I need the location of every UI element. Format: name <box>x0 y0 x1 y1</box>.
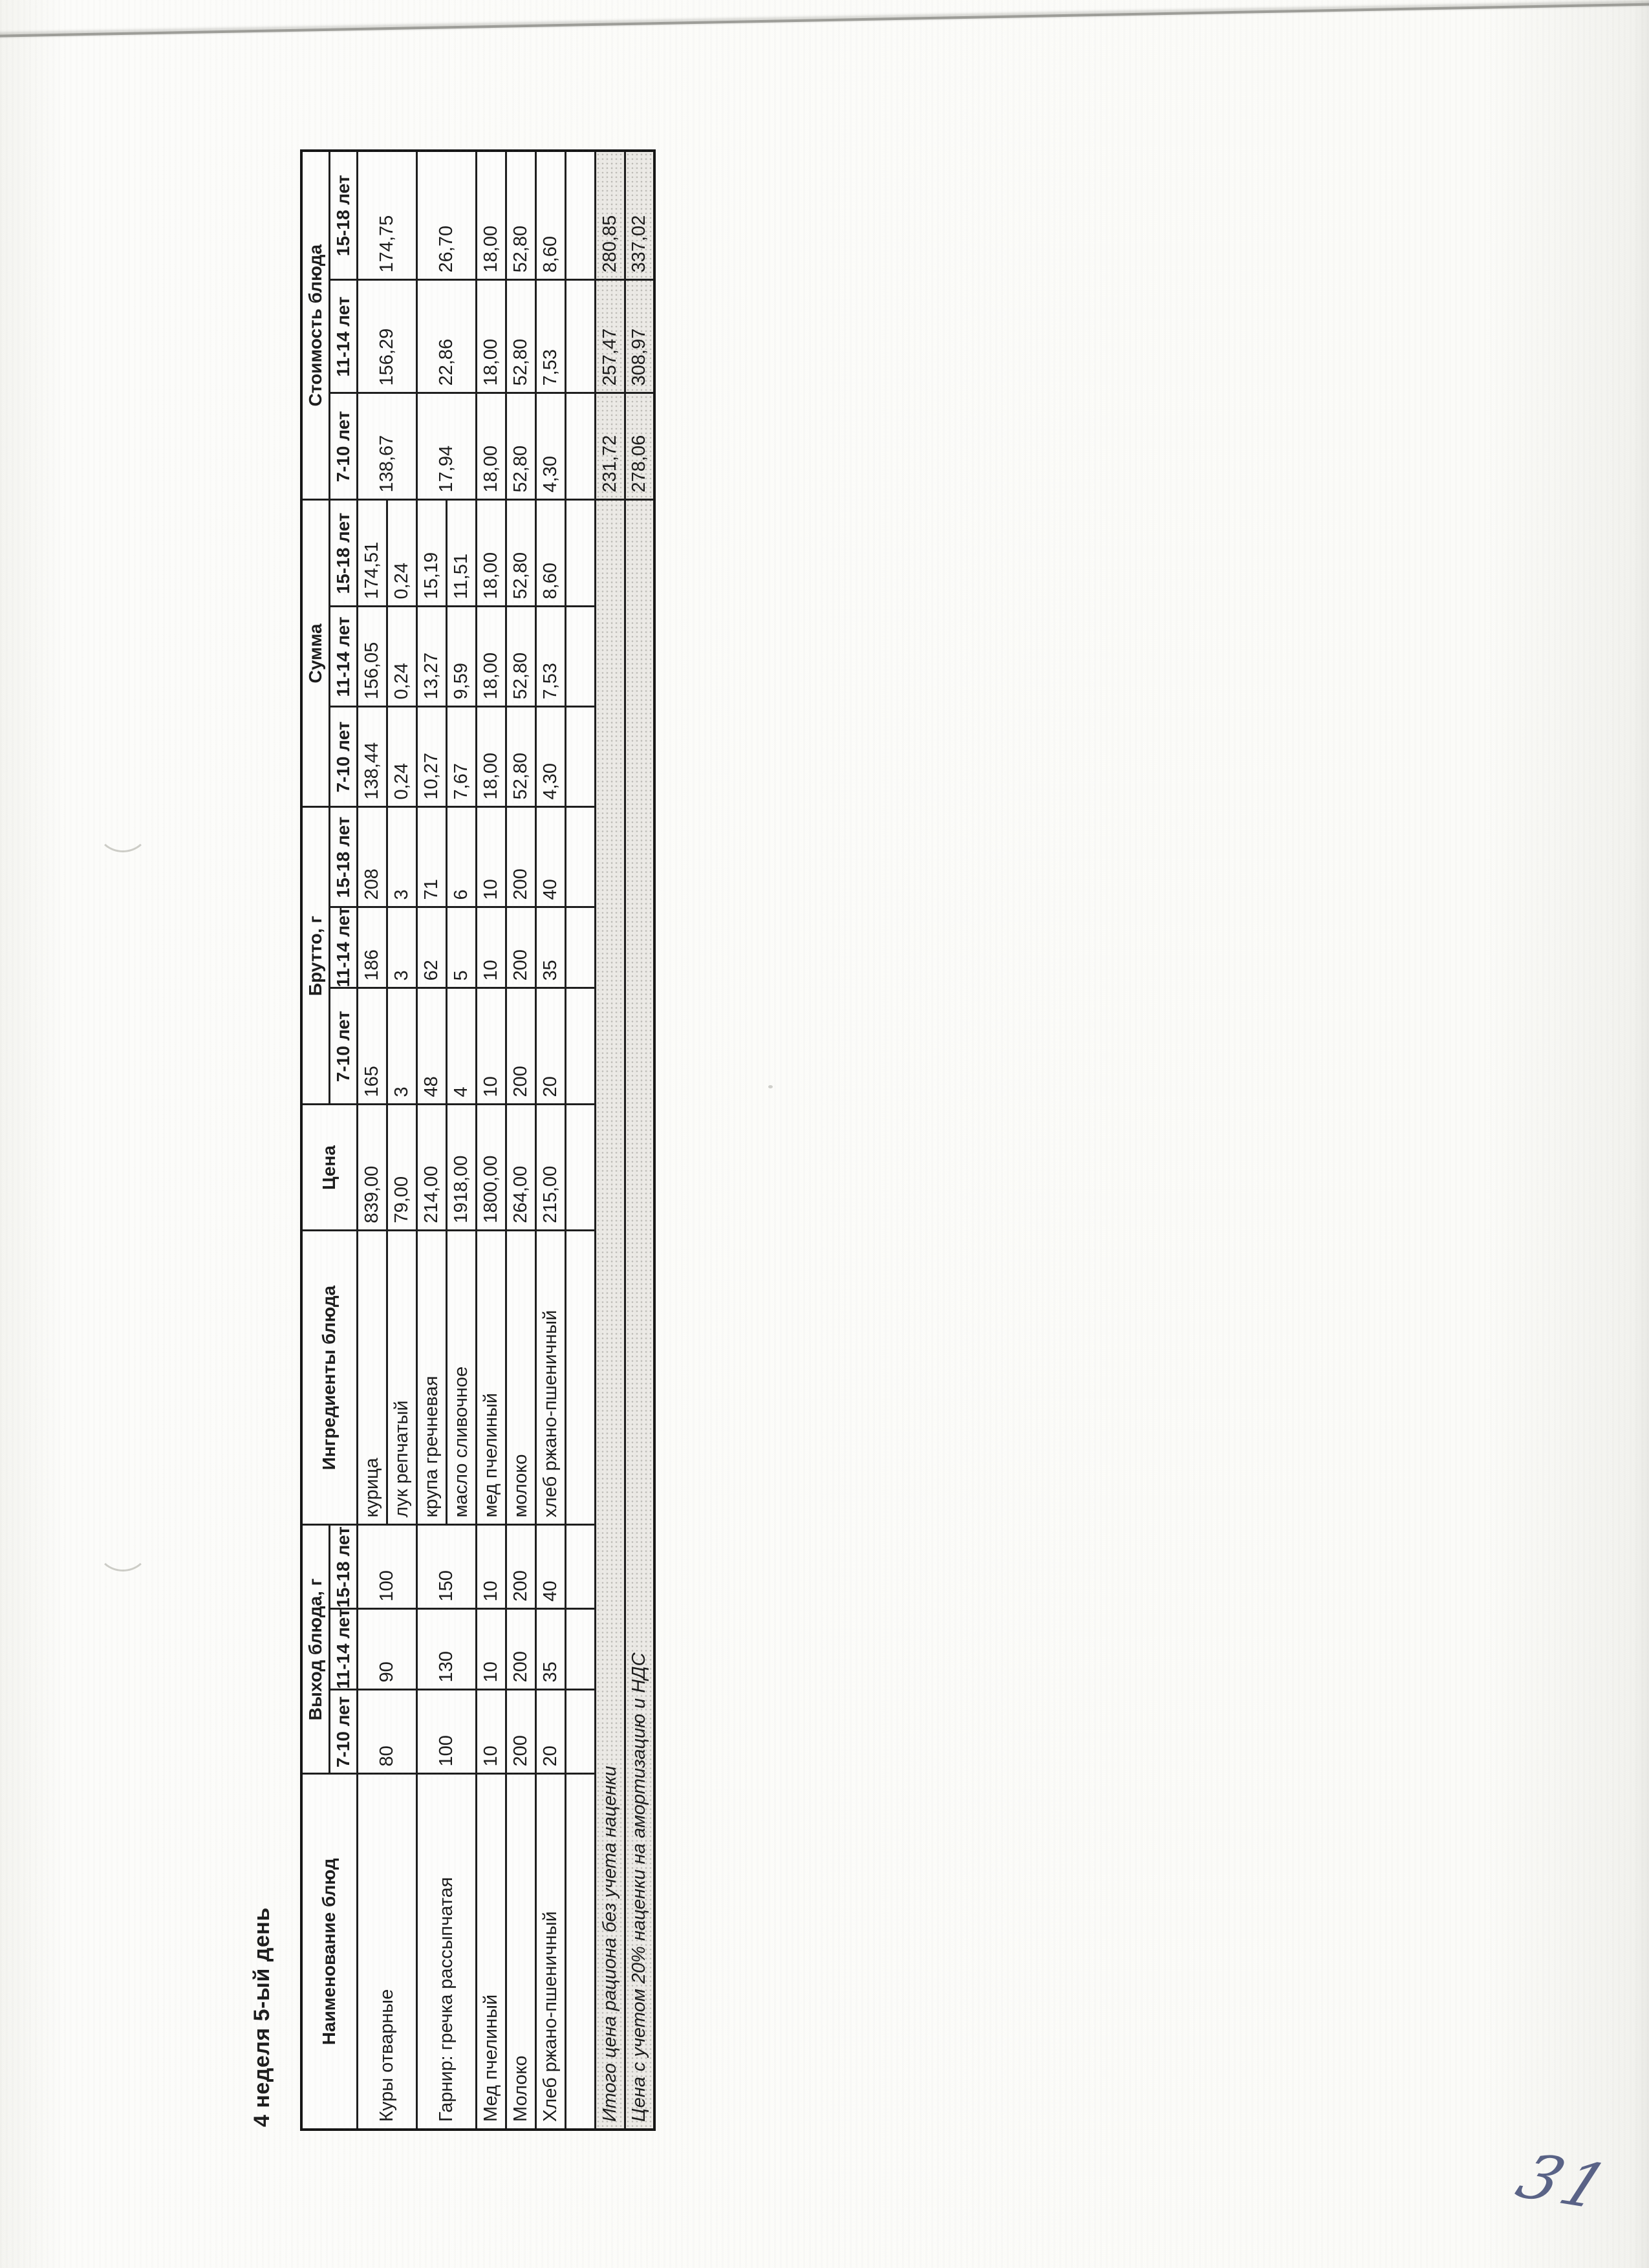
col-header-dish-name: Наименование блюд <box>301 1774 357 2130</box>
scanned-page: { "page": { "title": "4 неделя 5-ый день… <box>0 0 1649 2268</box>
cell-output: 200 <box>506 1690 535 1774</box>
cell-summa: 9,59 <box>446 607 476 707</box>
cell-output: 150 <box>416 1525 476 1609</box>
cell-dish-name: Хлеб ржано-пшеничный <box>535 1774 565 2130</box>
cell-empty <box>565 151 595 280</box>
cell-price: 215,00 <box>535 1105 565 1231</box>
cell-dish-name: Мед пчелиный <box>476 1774 506 2130</box>
cell-brutto: 35 <box>535 907 565 988</box>
cell-brutto: 40 <box>535 807 565 907</box>
cell-empty <box>565 907 595 988</box>
age-header: 7-10 лет <box>329 988 357 1105</box>
cell-output: 90 <box>357 1609 416 1690</box>
cell-brutto: 200 <box>506 807 535 907</box>
cell-empty <box>565 607 595 707</box>
cell-empty <box>565 1609 595 1690</box>
age-header: 11-14 лет <box>329 907 357 988</box>
table-row: Куры отварные 80 90 100 курица 839,00 16… <box>357 151 387 2130</box>
cell-cost: 18,00 <box>476 393 506 500</box>
age-header: 15-18 лет <box>329 807 357 907</box>
age-header: 11-14 лет <box>329 1609 357 1690</box>
table-row: Молоко 200 200 200 молоко 264,00 200 200… <box>506 151 535 2130</box>
cell-empty <box>565 988 595 1105</box>
cell-total-value: 278,06 <box>625 393 654 500</box>
cell-output: 35 <box>535 1609 565 1690</box>
col-header-output: Выход блюда, г <box>301 1525 329 1774</box>
cell-brutto: 10 <box>476 807 506 907</box>
cell-empty <box>565 1231 595 1525</box>
age-header: 11-14 лет <box>329 607 357 707</box>
cell-summa: 174,51 <box>357 500 387 607</box>
cell-brutto: 200 <box>506 907 535 988</box>
total-row: Цена с учетом 20% наценки на амортизацию… <box>625 151 654 2130</box>
cell-price: 264,00 <box>506 1105 535 1231</box>
age-header: 7-10 лет <box>329 707 357 807</box>
cell-summa: 15,19 <box>416 500 446 607</box>
cell-empty <box>565 1525 595 1609</box>
cell-ingredient: крупа гречневая <box>416 1231 446 1525</box>
cell-summa: 7,53 <box>535 607 565 707</box>
cell-brutto: 48 <box>416 988 446 1105</box>
scan-artifact-arc <box>97 806 149 852</box>
age-header: 7-10 лет <box>329 393 357 500</box>
cell-brutto: 3 <box>387 988 416 1105</box>
cell-cost: 18,00 <box>476 151 506 280</box>
cell-ingredient: хлеб ржано-пшеничный <box>535 1231 565 1525</box>
cell-summa: 18,00 <box>476 607 506 707</box>
cell-output: 100 <box>416 1690 476 1774</box>
cell-empty <box>565 393 595 500</box>
cell-ingredient: масло сливочное <box>446 1231 476 1525</box>
cell-summa: 0,24 <box>387 607 416 707</box>
cell-output: 130 <box>416 1609 476 1690</box>
cell-summa: 52,80 <box>506 707 535 807</box>
cell-dish-name: Гарнир: гречка рассыпчатая <box>416 1774 476 2130</box>
cell-empty <box>565 1105 595 1231</box>
cell-output: 80 <box>357 1690 416 1774</box>
cell-total-value: 257,47 <box>595 280 625 393</box>
cell-brutto: 5 <box>446 907 476 988</box>
table-row: Гарнир: гречка рассыпчатая 100 130 150 к… <box>416 151 446 2130</box>
table-row: Хлеб ржано-пшеничный 20 35 40 хлеб ржано… <box>535 151 565 2130</box>
cell-output: 10 <box>476 1690 506 1774</box>
cell-empty <box>565 707 595 807</box>
cell-price: 1800,00 <box>476 1105 506 1231</box>
cell-ingredient: лук репчатый <box>387 1231 416 1525</box>
cell-brutto: 208 <box>357 807 387 907</box>
col-header-cost: Стоимость блюда <box>301 151 329 500</box>
cell-price: 79,00 <box>387 1105 416 1231</box>
scan-speck <box>768 1085 773 1088</box>
scan-edge-line <box>0 3 1649 38</box>
cell-cost: 7,53 <box>535 280 565 393</box>
cell-ingredient: курица <box>357 1231 387 1525</box>
cell-output: 200 <box>506 1525 535 1609</box>
cell-empty <box>565 807 595 907</box>
table-row: Мед пчелиный 10 10 10 мед пчелиный 1800,… <box>476 151 506 2130</box>
cell-summa: 18,00 <box>476 500 506 607</box>
empty-row <box>565 151 595 2130</box>
cell-cost: 156,29 <box>357 280 416 393</box>
cell-total-value: 337,02 <box>625 151 654 280</box>
cell-brutto: 10 <box>476 907 506 988</box>
cell-brutto: 165 <box>357 988 387 1105</box>
cell-empty <box>565 1690 595 1774</box>
cell-price: 1918,00 <box>446 1105 476 1231</box>
col-header-brutto: Брутто, г <box>301 807 329 1105</box>
cell-brutto: 6 <box>446 807 476 907</box>
cell-summa: 18,00 <box>476 707 506 807</box>
cell-total-label: Цена с учетом 20% наценки на амортизацию… <box>625 500 654 2130</box>
page-number-handwritten: 31 <box>1507 2141 1622 2223</box>
cell-total-value: 308,97 <box>625 280 654 393</box>
total-row: Итого цена рациона без учета наценки 231… <box>595 151 625 2130</box>
header-row-blocks: Наименование блюд Выход блюда, г Ингреди… <box>301 151 329 2130</box>
cell-cost: 17,94 <box>416 393 476 500</box>
rotated-table-sheet: 4 неделя 5-ый день Наименование блюд Вых… <box>249 152 653 2131</box>
col-header-summa: Сумма <box>301 500 329 807</box>
cell-summa: 52,80 <box>506 607 535 707</box>
cell-summa: 8,60 <box>535 500 565 607</box>
scan-artifact-arc <box>97 1525 149 1571</box>
cell-total-value: 231,72 <box>595 393 625 500</box>
cell-empty <box>565 500 595 607</box>
cell-cost: 8,60 <box>535 151 565 280</box>
cell-summa: 11,51 <box>446 500 476 607</box>
cell-cost: 174,75 <box>357 151 416 280</box>
cell-brutto: 20 <box>535 988 565 1105</box>
age-header: 7-10 лет <box>329 1690 357 1774</box>
cell-cost: 52,80 <box>506 280 535 393</box>
age-header: 15-18 лет <box>329 151 357 280</box>
cell-output: 20 <box>535 1690 565 1774</box>
cell-cost: 52,80 <box>506 393 535 500</box>
cell-summa: 10,27 <box>416 707 446 807</box>
cell-cost: 26,70 <box>416 151 476 280</box>
cell-summa: 0,24 <box>387 707 416 807</box>
cell-brutto: 62 <box>416 907 446 988</box>
cell-empty <box>565 280 595 393</box>
cell-price: 839,00 <box>357 1105 387 1231</box>
cell-brutto: 4 <box>446 988 476 1105</box>
cell-summa: 138,44 <box>357 707 387 807</box>
document-title: 4 неделя 5-ый день <box>249 152 300 2131</box>
cell-brutto: 3 <box>387 807 416 907</box>
age-header: 11-14 лет <box>329 280 357 393</box>
cell-output: 10 <box>476 1525 506 1609</box>
cell-total-value: 280,85 <box>595 151 625 280</box>
cell-cost: 22,86 <box>416 280 476 393</box>
cell-summa: 52,80 <box>506 500 535 607</box>
cell-summa: 0,24 <box>387 500 416 607</box>
cell-brutto: 3 <box>387 907 416 988</box>
cell-output: 40 <box>535 1525 565 1609</box>
age-header: 15-18 лет <box>329 1525 357 1609</box>
age-header: 15-18 лет <box>329 500 357 607</box>
cell-output: 10 <box>476 1609 506 1690</box>
cell-total-label: Итого цена рациона без учета наценки <box>595 500 625 2130</box>
cell-cost: 138,67 <box>357 393 416 500</box>
cell-output: 100 <box>357 1525 416 1609</box>
cell-brutto: 200 <box>506 988 535 1105</box>
cell-summa: 4,30 <box>535 707 565 807</box>
cell-dish-name: Молоко <box>506 1774 535 2130</box>
cell-summa: 7,67 <box>446 707 476 807</box>
cell-summa: 156,05 <box>357 607 387 707</box>
cell-brutto: 186 <box>357 907 387 988</box>
cell-ingredient: мед пчелиный <box>476 1231 506 1525</box>
cell-price: 214,00 <box>416 1105 446 1231</box>
col-header-price: Цена <box>301 1105 357 1231</box>
cell-dish-name: Куры отварные <box>357 1774 416 2130</box>
cell-output: 200 <box>506 1609 535 1690</box>
cell-brutto: 71 <box>416 807 446 907</box>
cell-empty <box>565 1774 595 2130</box>
cell-brutto: 10 <box>476 988 506 1105</box>
cell-cost: 4,30 <box>535 393 565 500</box>
cell-cost: 18,00 <box>476 280 506 393</box>
cell-ingredient: молоко <box>506 1231 535 1525</box>
cell-summa: 13,27 <box>416 607 446 707</box>
cell-cost: 52,80 <box>506 151 535 280</box>
meal-cost-table: Наименование блюд Выход блюда, г Ингреди… <box>300 149 656 2131</box>
col-header-ingredients: Ингредиенты блюда <box>301 1231 357 1525</box>
